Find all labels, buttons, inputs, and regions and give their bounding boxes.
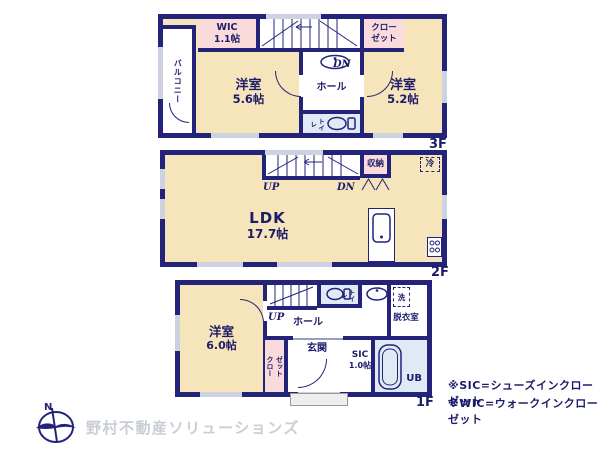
window-2f-bottom-2: [277, 262, 332, 267]
bedroom-5-2-size: 5.2帖: [387, 93, 419, 107]
company-logo-text: 野村不動産ソリューションズ: [86, 417, 300, 438]
washer-space: 洗: [393, 287, 410, 307]
window-2f-bottom-1: [197, 262, 243, 267]
window-3f-left: [158, 47, 163, 99]
toilet-1f-label: トイレ: [338, 286, 354, 304]
storage-2f: 収納: [360, 155, 391, 178]
toilet-3f: トイレ: [299, 110, 364, 133]
window-2f-right: [442, 195, 447, 219]
wic-label: WIC 1.1帖: [214, 22, 240, 45]
wic-size: 1.1帖: [214, 34, 240, 45]
floor-1f: 洋室 6.0帖 UP トイレ: [175, 280, 432, 397]
stairs-3f: [260, 19, 360, 52]
ldk-size: 17.7帖: [247, 227, 289, 241]
sic-name: SIC: [349, 350, 371, 361]
stairs-1f-drawing: [267, 285, 317, 306]
bedroom-5-6-size: 5.6帖: [233, 93, 265, 107]
floorplan-canvas: バルコニー WIC 1.1帖: [0, 0, 600, 450]
dn-3f-label: DN: [333, 59, 351, 70]
fridge-space: 冷: [420, 157, 440, 172]
dn-2f-label: DN: [337, 182, 355, 193]
floor-3f: バルコニー WIC 1.1帖: [158, 14, 447, 138]
window-1f-bottom: [200, 392, 242, 397]
stairs-3f-drawing: [260, 19, 360, 48]
entrance-door-arc: [298, 359, 327, 388]
sic-size: 1.0帖: [349, 361, 371, 371]
hall-3f: ホール: [299, 52, 364, 110]
window-1f-left: [175, 315, 180, 351]
window-3f-bottom-west: [211, 133, 259, 138]
storage-folding-door-icon: [360, 178, 391, 191]
washbasin-1f-icon: [365, 286, 389, 302]
closet-3f-line1: クロー: [371, 23, 397, 33]
stairs-1f: [267, 285, 317, 310]
compass-north-letter: N: [44, 402, 52, 413]
closet-1f-label: クロー ゼット: [266, 356, 284, 377]
bedroom-5-6-name: 洋室: [233, 78, 265, 94]
unit-bath-label: UB: [406, 373, 422, 385]
window-3f-bottom-east: [373, 133, 403, 138]
window-2f-left-1: [160, 169, 165, 189]
washer-label: 洗: [398, 293, 406, 302]
ldk-label: LDK 17.7帖: [247, 209, 289, 241]
fridge-label: 冷: [426, 159, 435, 169]
bedroom-5-2: 洋室 5.2帖: [364, 52, 442, 133]
kitchen-sink-icon: [372, 213, 391, 243]
closet-1f-line1: クロー: [266, 356, 274, 377]
closet-3f-label: クロー ゼット: [371, 23, 397, 43]
toilet-3f-icon: [325, 116, 359, 131]
entrance-label: 玄関: [307, 343, 327, 355]
hall-1f: ホール: [280, 315, 336, 331]
unit-bath: UB: [375, 336, 427, 392]
bedroom-5-6-label: 洋室 5.6帖: [233, 78, 265, 107]
floor-label-1f: 1F: [416, 395, 434, 410]
window-2f-top: [265, 150, 323, 155]
dressing-room-label: 脱衣室: [393, 313, 419, 323]
stove-burners-icon: [428, 238, 441, 256]
toilet-1f: トイレ: [317, 285, 362, 308]
toilet-3f-label: トイレ: [308, 115, 324, 133]
closet-3f: クロー ゼット: [360, 19, 404, 52]
closet-3f-line2: ゼット: [371, 34, 397, 44]
bedroom-5-2-label: 洋室 5.2帖: [387, 78, 419, 107]
dressing-room: 脱衣室: [385, 311, 427, 325]
wic-name: WIC: [214, 22, 240, 33]
walk-in-closet-3f: WIC 1.1帖: [198, 19, 260, 52]
window-3f-right: [442, 71, 447, 103]
bathtub-icon: [378, 344, 402, 390]
hall-3f-label: ホール: [317, 82, 347, 94]
storage-2f-label: 収納: [367, 159, 384, 169]
stove: [427, 237, 442, 257]
bedroom-5-6: 洋室 5.6帖: [198, 52, 299, 133]
stairs-2f-drawing: [266, 155, 360, 176]
bedroom-6-0-label: 洋室 6.0帖: [206, 324, 237, 352]
stairs-2f: [262, 155, 360, 180]
closet-1f-line2: ゼット: [275, 356, 283, 377]
ldk: LDK 17.7帖: [215, 205, 320, 245]
floor-label-2f: 2F: [431, 265, 449, 280]
ldk-name: LDK: [247, 209, 289, 227]
bedroom-5-2-name: 洋室: [387, 78, 419, 94]
compass-north-icon: N: [30, 400, 80, 446]
window-2f-left-2: [160, 199, 165, 219]
entrance: 玄関: [290, 341, 344, 357]
closet-1f: クロー ゼット: [265, 340, 288, 392]
bedroom-6-0-size: 6.0帖: [206, 339, 237, 352]
floor-2f: UP DN 収納 冷 LDK 17.7帖: [160, 150, 447, 267]
bedroom-6-0-name: 洋室: [206, 324, 237, 339]
kitchen-counter: [368, 208, 395, 262]
note-wic: ※WIC=ウォークインクローゼット: [448, 395, 600, 427]
bedroom-6-0: 洋室 6.0帖: [180, 285, 267, 392]
up-2f-label: UP: [263, 182, 279, 193]
hall-1f-label: ホール: [293, 317, 323, 329]
entrance-step-line: [293, 338, 343, 340]
balcony-label: バルコニー: [173, 59, 183, 104]
shoe-closet-label: SIC 1.0帖: [349, 350, 371, 370]
entrance-porch: [290, 393, 348, 406]
window-3f-top: [266, 14, 321, 19]
